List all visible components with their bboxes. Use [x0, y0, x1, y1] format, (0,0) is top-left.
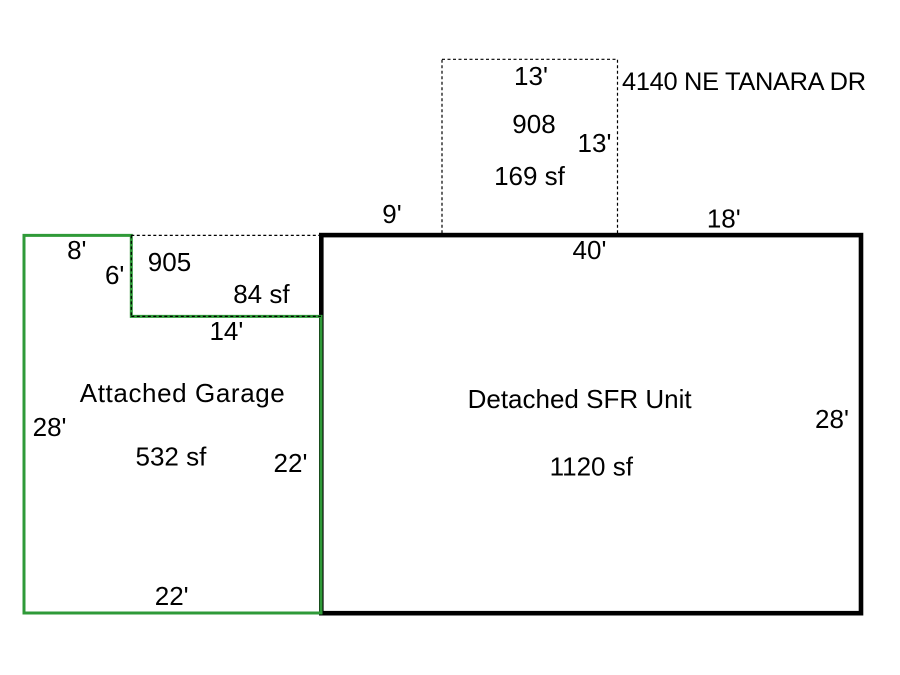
svg-text:6': 6': [105, 260, 124, 290]
svg-text:18': 18': [707, 204, 741, 234]
svg-text:1120 sf: 1120 sf: [550, 452, 634, 482]
svg-text:905: 905: [148, 247, 191, 277]
svg-text:22': 22': [155, 581, 189, 611]
svg-text:9': 9': [382, 199, 401, 229]
svg-text:13': 13': [514, 61, 548, 91]
svg-text:8': 8': [67, 235, 86, 265]
svg-text:Detached SFR Unit: Detached SFR Unit: [468, 384, 693, 414]
svg-text:169 sf: 169 sf: [494, 161, 566, 191]
svg-text:908: 908: [512, 109, 555, 139]
svg-text:13': 13': [578, 128, 612, 158]
svg-text:28': 28': [33, 412, 67, 442]
svg-text:84 sf: 84 sf: [233, 279, 290, 309]
svg-text:532 sf: 532 sf: [135, 442, 207, 472]
svg-text:40': 40': [573, 235, 607, 265]
svg-text:22': 22': [274, 448, 308, 478]
svg-text:14': 14': [209, 316, 243, 346]
svg-text:Attached Garage: Attached Garage: [80, 378, 286, 408]
svg-text:28': 28': [815, 404, 849, 434]
svg-text:4140 NE TANARA DR: 4140 NE TANARA DR: [622, 68, 866, 96]
